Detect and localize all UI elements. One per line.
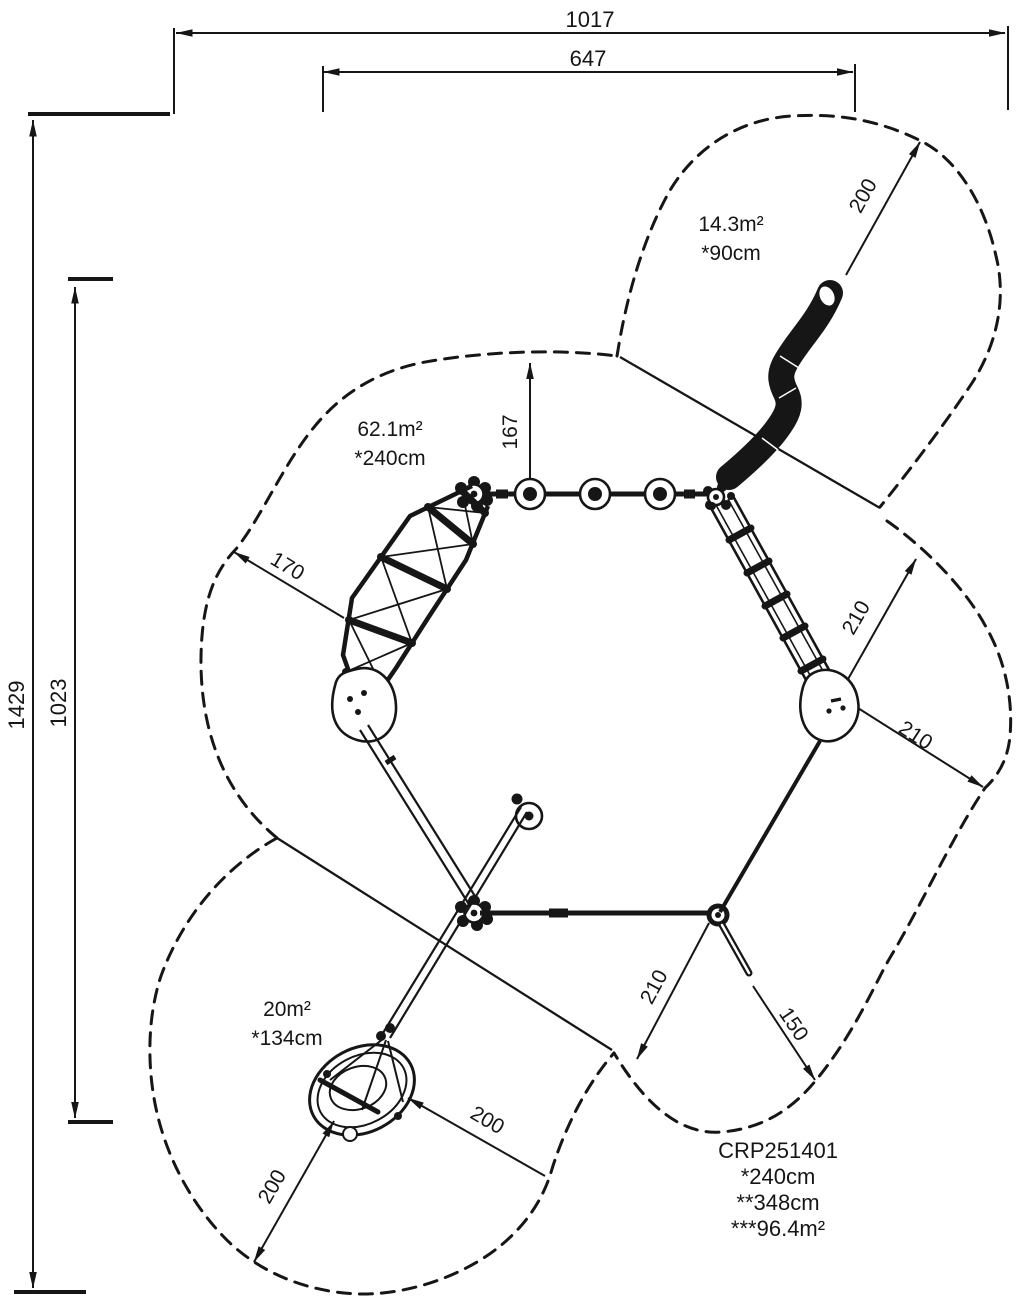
dimension-lines <box>33 33 1005 1288</box>
support-bar-right <box>720 741 820 912</box>
dim-label-net-zone: 170 <box>266 548 308 586</box>
dim-label-snake-zone: 200 <box>845 175 882 217</box>
snake-slide <box>729 284 838 477</box>
platform-left <box>332 668 396 742</box>
dim-label-inner-width: 647 <box>570 46 607 71</box>
swing-arm <box>383 807 527 1038</box>
swing-pivot <box>512 794 543 830</box>
zone-top-right-height: *90cm <box>701 242 761 265</box>
product-code: CRP251401 <box>718 1138 838 1163</box>
slide-rails <box>360 725 478 906</box>
zone-swing-height: *134cm <box>251 1027 322 1050</box>
dim-label-overall-depth: 1429 <box>4 681 29 730</box>
dim-label-ladder-zone-lower: 210 <box>895 716 937 754</box>
separator-bottom-left <box>277 838 612 1050</box>
zone-labels: 14.3m² *90cm 62.1m² *240cm 20m² *134cm <box>251 213 763 1050</box>
zone-arc-swing-circle <box>150 838 614 1294</box>
post-ring-1 <box>515 479 545 509</box>
firemans-pole <box>722 925 749 973</box>
climbing-ladder <box>708 492 833 689</box>
post-ring-2 <box>580 479 610 509</box>
dim-label-top-post-offset: 167 <box>499 414 522 449</box>
zone-top-right-area: 14.3m² <box>698 213 763 236</box>
platform-right <box>800 670 858 741</box>
dim-label-inner-depth: 1023 <box>46 679 71 728</box>
zone-swing-area: 20m² <box>263 998 311 1021</box>
dim-label-overall-width: 1017 <box>566 7 615 32</box>
title-block: CRP251401 *240cm **348cm ***96.4m² <box>718 1138 838 1241</box>
zone-main-height: *240cm <box>354 447 425 470</box>
dim-label-swing-zone-right: 200 <box>466 1102 508 1139</box>
playground-plan-drawing: 1017 647 1429 1023 167 170 200 210 210 2… <box>0 0 1024 1306</box>
dim-label-swing-zone-left: 200 <box>254 1166 291 1208</box>
technical-drawing-page: 1017 647 1429 1023 167 170 200 210 210 2… <box>0 0 1024 1306</box>
product-fall-height: *240cm <box>741 1164 816 1189</box>
post-ring-3 <box>645 479 675 509</box>
dim-label-pole-zone: 150 <box>774 1003 813 1045</box>
zone-main-area: 62.1m² <box>357 418 422 441</box>
product-safety-area: ***96.4m² <box>731 1216 825 1241</box>
zone-arc-right-and-bottom-lobe <box>614 521 1011 1132</box>
dim-label-ladder-zone-upper: 210 <box>838 597 875 639</box>
safety-zone-outline <box>150 115 1011 1294</box>
product-total-height: **348cm <box>736 1190 819 1215</box>
